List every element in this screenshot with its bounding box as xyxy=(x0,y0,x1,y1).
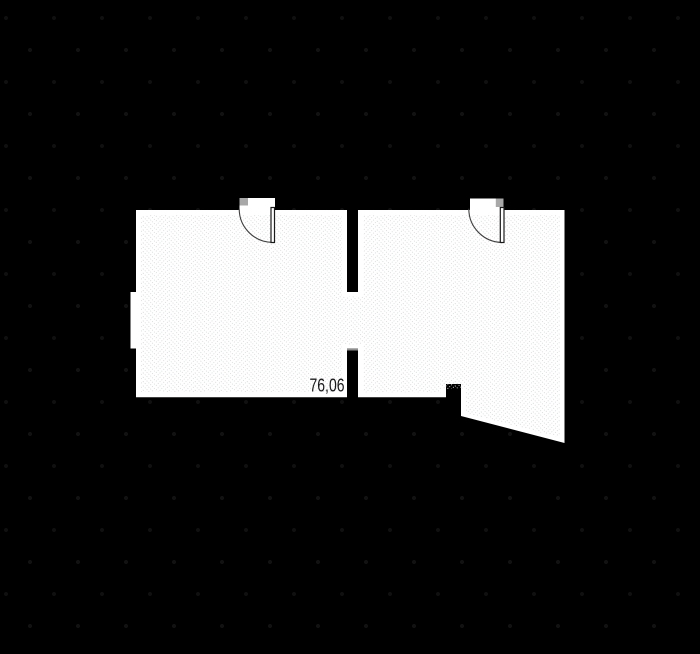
left-door-hinge-marker xyxy=(240,198,249,206)
left-door-leaf xyxy=(271,208,275,243)
room-left-parquet xyxy=(141,215,342,392)
right-door-hinge-marker xyxy=(496,199,504,208)
area-label: 76,06 xyxy=(310,375,345,396)
floor-plan-drawing: 76,06 xyxy=(0,0,700,654)
right-door-leaf xyxy=(500,208,504,243)
interior-doorway-parquet xyxy=(342,297,363,345)
interior-doorway-threshold xyxy=(347,348,358,350)
floor-plan-canvas: 76,06 xyxy=(0,0,700,654)
